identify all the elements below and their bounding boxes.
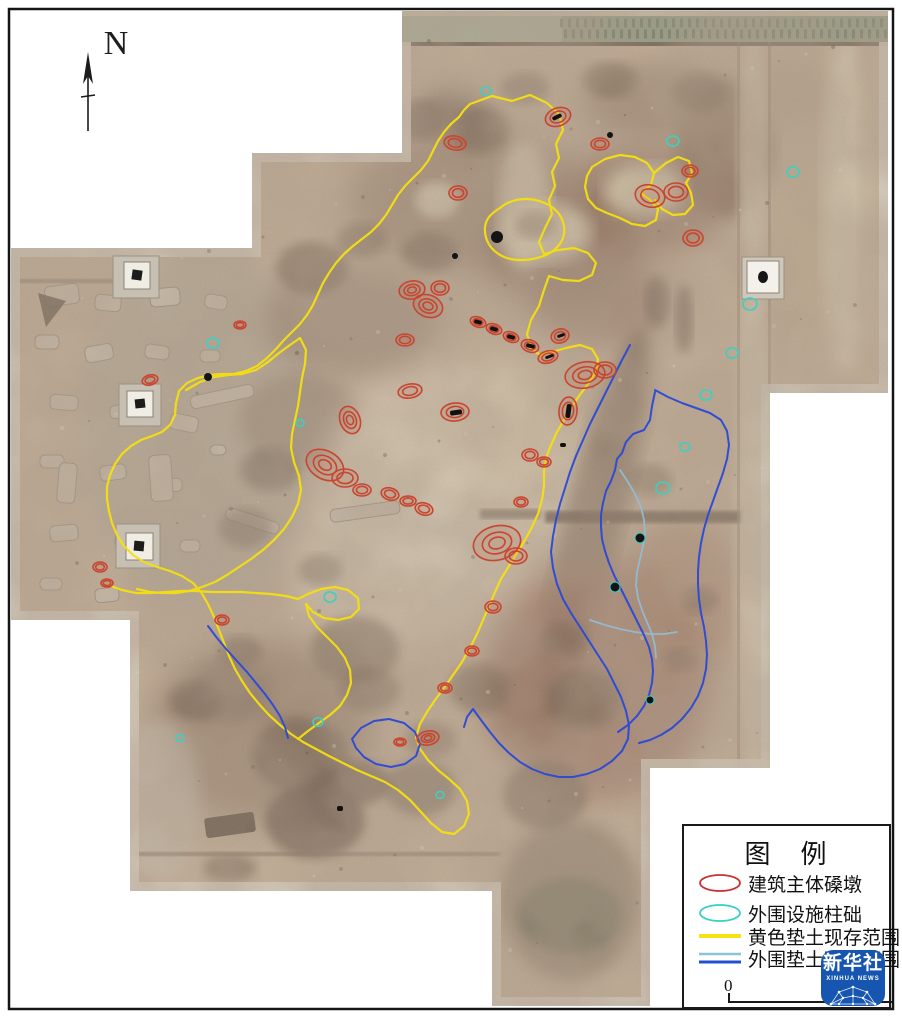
posthole-mark: [491, 231, 503, 243]
cyan-ellipse-swatch: [697, 903, 743, 923]
xinhua-watermark: 新华社 XINHUA NEWS: [821, 950, 885, 1006]
red-ellipse-swatch: [697, 873, 743, 893]
gravel-speck: [273, 93, 277, 97]
posthole-mark: [646, 696, 654, 704]
gravel-speck: [235, 243, 237, 245]
posthole-mark: [452, 253, 458, 259]
excavation-figure: N 图 例 建筑主体磉墩 外围设施柱础 黄色垫土现存范围 外围垫土现存范围 0 …: [0, 0, 902, 1024]
gravel-speck: [822, 576, 824, 578]
gravel-speck: [301, 87, 303, 89]
gravel-speck: [247, 101, 250, 104]
gravel-speck: [328, 80, 331, 83]
gravel-speck: [783, 725, 786, 728]
gravel-speck: [809, 717, 813, 721]
pier-stone: [742, 257, 784, 299]
gravel-speck: [66, 162, 68, 164]
gravel-speck: [59, 39, 61, 41]
gravel-speck: [125, 813, 127, 815]
gravel-speck: [97, 819, 101, 823]
gravel-speck: [240, 908, 243, 911]
posthole-mark: [204, 373, 212, 381]
gravel-speck: [455, 963, 457, 965]
gravel-speck: [71, 827, 74, 830]
gravel-speck: [482, 956, 485, 959]
posthole-mark: [337, 806, 343, 811]
north-arrow-tick: [81, 95, 95, 97]
gravel-speck: [93, 155, 96, 158]
pier-stone: [119, 384, 161, 426]
gravel-speck: [213, 915, 215, 917]
map-legend: 图 例 建筑主体磉墩 外围设施柱础 黄色垫土现存范围 外围垫土现存范围 0 新华…: [682, 824, 891, 1009]
yellow-line-swatch: [697, 926, 743, 946]
gravel-speck: [354, 72, 358, 76]
gravel-speck: [147, 141, 149, 143]
legend-item-pier-foundation: 建筑主体磉墩: [697, 870, 862, 896]
double-line-swatch: [697, 948, 743, 968]
gravel-speck: [794, 582, 798, 586]
legend-title: 图 例: [684, 834, 889, 871]
xinhua-network-globe-icon: [829, 984, 877, 1006]
gravel-speck: [110, 678, 112, 680]
gravel-speck: [662, 894, 666, 898]
pier-stone: [116, 524, 160, 568]
gravel-speck: [849, 569, 852, 572]
xinhua-name: 新华社: [823, 953, 883, 975]
legend-item-label: 建筑主体磉墩: [748, 870, 862, 897]
posthole-mark: [610, 582, 620, 592]
xinhua-subtitle: XINHUA NEWS: [826, 975, 879, 983]
gravel-speck: [132, 936, 134, 938]
posthole-mark: [560, 443, 566, 447]
pier-stone: [113, 256, 159, 298]
posthole-mark: [635, 533, 645, 543]
gravel-speck: [159, 929, 162, 932]
north-label: N: [104, 25, 129, 62]
gravel-speck: [787, 459, 791, 463]
gravel-speck: [185, 921, 189, 925]
posthole-mark: [607, 132, 613, 138]
gravel-speck: [119, 147, 123, 151]
north-arrow: N: [81, 25, 128, 131]
